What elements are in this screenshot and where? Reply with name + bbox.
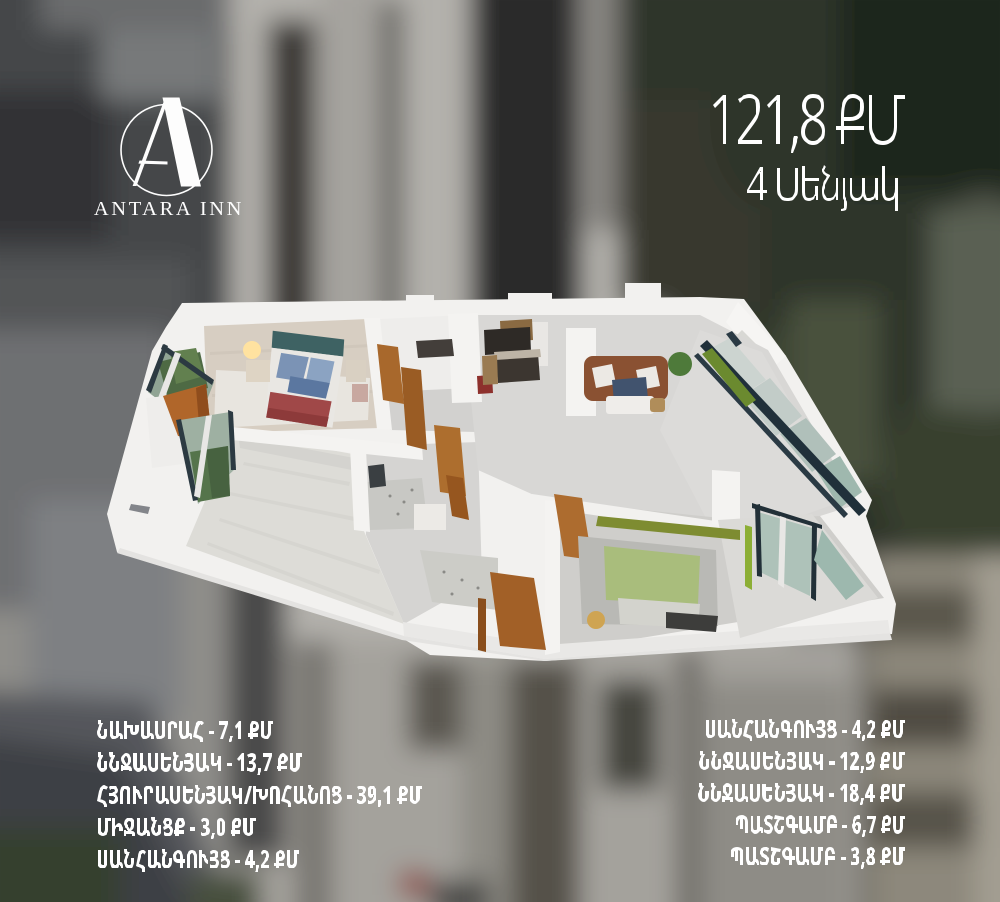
svg-text:ANTARA INN: ANTARA INN (94, 198, 244, 220)
